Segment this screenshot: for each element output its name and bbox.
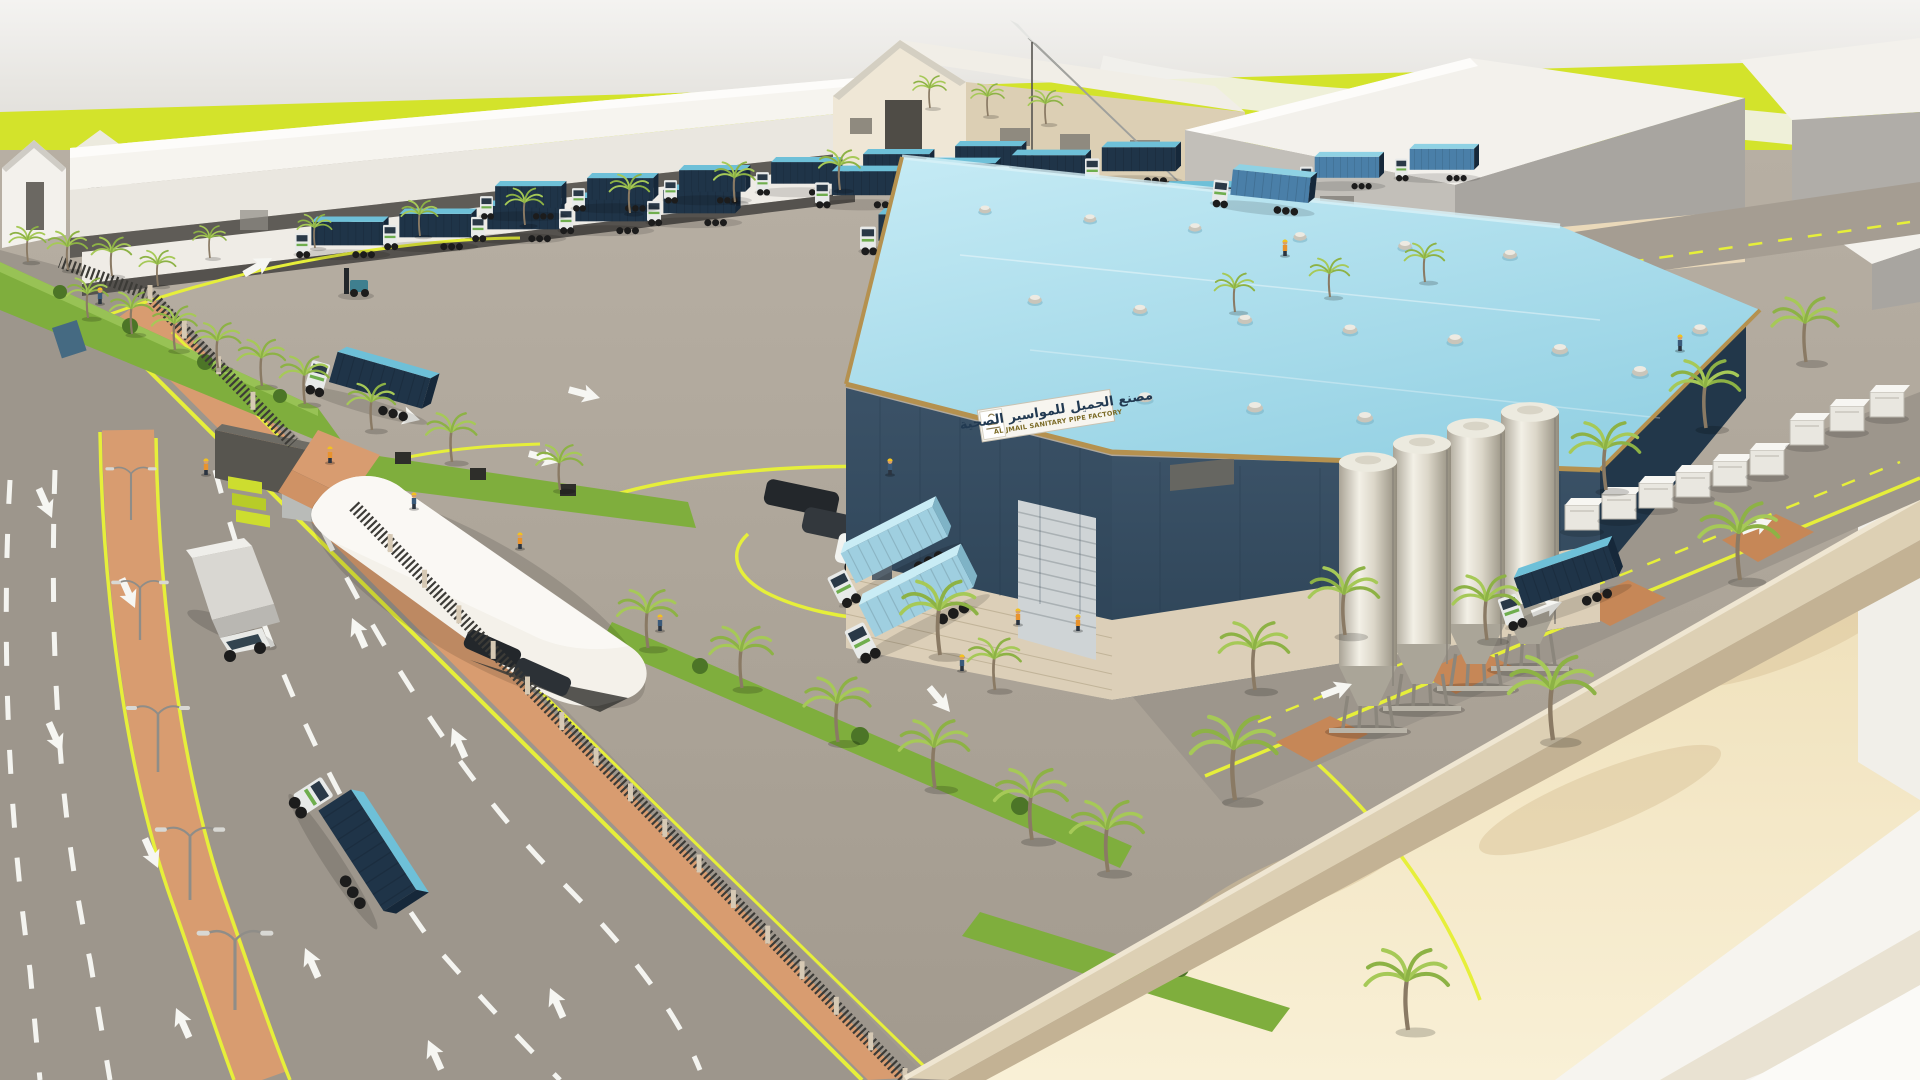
wheel [560,227,567,234]
trailer-side [399,214,471,237]
lamp-head [126,706,137,710]
wheel [368,251,375,258]
factory-compound-render: مصنع الجميل للمواسير الصحية AL JMAIL SAN… [0,0,1920,1080]
palm-trunk [1604,448,1606,490]
wheel [861,247,869,255]
wheel [1396,175,1402,181]
palm-trunk [1253,648,1255,690]
wheel [1365,183,1371,189]
lamp-head [155,827,167,831]
trailer-top [1410,144,1479,149]
wheel [632,227,639,234]
palm-trunk [1030,796,1032,840]
equipment-unit [1708,454,1753,493]
palm-trunk [217,340,218,368]
lamp-head [260,931,273,936]
lamp-head [179,706,190,710]
wheel [573,205,579,211]
palm-trunk [1804,322,1806,362]
palm-trunk [734,177,735,202]
palm-trunk [209,238,210,258]
fence-post [559,712,564,730]
trailer-side [771,162,837,184]
wheel [303,251,310,258]
equipment-unit [1560,498,1605,537]
wheel [672,197,678,203]
trailer-top [1012,150,1091,156]
silo-pad [1437,686,1515,691]
palm-trunk [1485,600,1487,640]
wheel [639,205,645,211]
wheel [717,197,723,203]
wheel [1446,175,1452,181]
fence-post [456,605,461,623]
palm-trunk [1405,980,1408,1030]
fence-post [491,641,496,659]
lamp-head [197,931,210,936]
palm-trunk [993,658,995,690]
fence-post [594,748,599,766]
fence-post [765,926,770,944]
palm-trunk [157,264,158,286]
palm-trunk [1045,103,1046,124]
trailer-top [1315,152,1384,157]
wheel [384,243,391,250]
fence-post [628,783,633,801]
wheel [874,201,881,208]
palm-trunk [524,202,525,225]
wheel [1453,175,1459,181]
equipment-unit [1825,399,1870,438]
lamp-head [148,467,157,470]
fence-post [868,1032,873,1050]
trailer-top [495,181,566,186]
wheel [547,213,553,219]
equipment-unit [1671,465,1716,504]
wheel [360,251,367,258]
wheel [648,219,655,226]
lamp-head [213,827,225,831]
lamp-head [105,467,114,470]
wheel [1351,183,1357,189]
wheel [665,197,671,203]
palm-trunk [836,702,838,742]
palm-trunk [1424,258,1425,282]
trailer-top [863,149,934,154]
wheel [488,213,494,219]
wheel [456,243,463,250]
trailer-side [1315,157,1379,178]
silo-body [1393,444,1451,644]
palm-trunk [1106,828,1108,872]
wheel [1460,175,1466,181]
fence-post [800,961,805,979]
wheel [704,219,711,226]
wheel [816,201,823,208]
palm-trunk [1232,748,1235,800]
palm-trunk [933,746,935,788]
palm-trunk [1343,593,1345,635]
equipment-unit [1865,385,1910,424]
palm-trunk [260,357,262,386]
lamp-head [111,581,121,585]
wheel [757,189,763,195]
wheel [448,243,455,250]
wheel [616,227,623,234]
wheel [655,219,662,226]
wheel [823,201,830,208]
palm-trunk [450,432,452,462]
equipment-unit [1745,443,1790,482]
fence-post [388,534,393,552]
wheel [869,247,877,255]
wheel [352,251,359,258]
palm-trunk [646,612,648,648]
wheel [391,243,398,250]
palm-trunk [559,462,560,490]
palm-trunk [27,240,28,262]
fence-post [250,392,255,410]
palm-trunk [839,165,840,190]
palm-trunk [1704,386,1706,428]
wheel [1358,183,1364,189]
wheel [536,235,543,242]
palm-trunk [740,650,742,688]
wheel [472,235,479,242]
fence-post [662,819,667,837]
palm-trunk [131,308,132,334]
palm-trunk [1329,273,1330,297]
wheel [533,213,539,219]
palm-trunk [629,189,630,213]
palm-trunk [87,293,88,318]
fence-post [422,570,427,588]
palm-trunk [938,609,940,655]
wheel [528,235,535,242]
wheel [632,205,638,211]
palm-trunk [1234,288,1235,312]
palm-trunk [1737,532,1740,580]
palm-trunk [987,96,988,116]
palm-trunk [370,401,372,430]
rendered-scene: مصنع الجميل للمواسير الصحية AL JMAIL SAN… [0,0,1920,1080]
palm-trunk [303,374,305,404]
palm-trunk [174,323,175,350]
silo-pad [1383,706,1461,711]
trailer-side [1410,149,1474,170]
palm-trunk [419,214,420,236]
wheel [624,227,631,234]
wheel [440,243,447,250]
wheel [1402,175,1408,181]
trailer-side [1102,147,1176,171]
wheel [540,213,546,219]
wheel [580,205,586,211]
palm-trunk [111,252,112,276]
roller-door [1018,500,1096,660]
trailer-top [1102,142,1181,148]
fence-post [697,854,702,872]
wheel [296,251,303,258]
palm-trunk [314,227,315,248]
wheel [544,235,551,242]
fence-post [525,677,530,695]
wheel [712,219,719,226]
palm-trunk [67,246,68,270]
lamp-head [159,581,169,585]
fence-post [182,321,187,339]
wheel [764,189,770,195]
wheel [720,219,727,226]
palm-trunk [929,88,930,108]
wheel [809,189,815,195]
fence-post [834,997,839,1015]
wheel [567,227,574,234]
silo-pad [1329,728,1407,733]
fence-post [731,890,736,908]
wheel [481,213,487,219]
trailer-side [311,222,383,245]
wheel [479,235,486,242]
equipment-unit [1634,476,1679,515]
palm-trunk [1550,688,1553,740]
trailer-top [955,141,1026,146]
equipment-unit [1785,413,1830,452]
